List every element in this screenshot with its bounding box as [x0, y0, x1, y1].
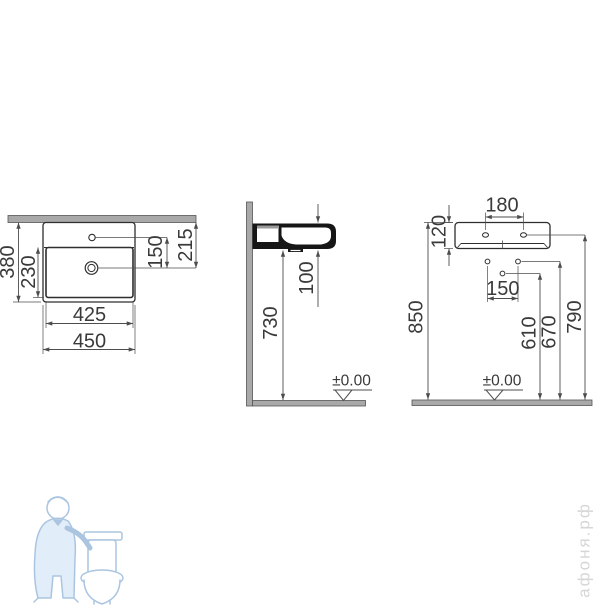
- plumber-watermark: [34, 497, 123, 604]
- dim-label-790: 790: [564, 300, 586, 333]
- dim-label-670: 670: [539, 315, 561, 348]
- drain-icon: [85, 262, 98, 275]
- dimension-drawing-canvas: 380 230 150 215 425 450: [0, 0, 600, 611]
- technical-drawing-page: 380 230 150 215 425 450: [0, 0, 600, 611]
- site-watermark-text: афоня.рф: [575, 502, 594, 598]
- tap-hole-icon: [89, 234, 95, 240]
- drain-outlet-hole: [500, 271, 505, 276]
- dim-label-380: 380: [0, 245, 19, 278]
- dim-label-180: 180: [485, 195, 518, 217]
- level-label-side: ±0.00: [332, 373, 371, 390]
- level-mark-icon: [486, 390, 503, 400]
- basin-front-body: [455, 223, 550, 249]
- dim-inner-width: 425: [46, 301, 133, 328]
- basin-cross-section: [253, 224, 337, 253]
- wall-section-side-view: [247, 202, 253, 406]
- dim-label-450: 450: [73, 331, 106, 353]
- level-label-front: ±0.00: [483, 373, 522, 390]
- dim-label-850: 850: [406, 300, 428, 333]
- floor-level-mark-side: ±0.00: [332, 373, 372, 401]
- floor-level-mark-front: ±0.00: [483, 373, 523, 401]
- dim-label-610: 610: [519, 316, 541, 349]
- floor-section-front-view: [412, 400, 592, 406]
- dim-label-120: 120: [429, 215, 451, 248]
- dim-wall-to-drain: 215: [175, 223, 197, 269]
- floor-section-side-view: [253, 401, 366, 407]
- dim-label-150-front: 150: [486, 278, 519, 300]
- dim-label-230: 230: [18, 255, 40, 288]
- mounting-hole-right: [521, 233, 527, 237]
- dim-label-100: 100: [296, 261, 318, 294]
- dim-label-425: 425: [73, 304, 106, 326]
- plumber-icon: [34, 497, 90, 602]
- dim-label-730: 730: [260, 306, 282, 339]
- side-view: 100 730 ±0.00: [247, 202, 373, 406]
- dim-hole-to-drain: 150: [145, 235, 167, 268]
- mounting-hole-left: [483, 233, 489, 237]
- dim-floor-to-underside: 730: [260, 251, 283, 401]
- dim-label-215: 215: [175, 228, 197, 261]
- wall-section-top-view: [8, 216, 196, 223]
- dim-bowl-depth: 230: [18, 248, 44, 298]
- fixing-hole-right: [516, 259, 521, 264]
- fixing-hole-left: [485, 259, 490, 264]
- dim-body-height: 120: [429, 205, 454, 266]
- dim-drain-offset: 100: [296, 251, 318, 308]
- level-mark-icon: [335, 390, 352, 401]
- dim-label-150-top: 150: [145, 235, 167, 268]
- front-view: 180 120 150 610 670: [406, 195, 593, 406]
- top-view: 380 230 150 215 425 450: [0, 216, 197, 355]
